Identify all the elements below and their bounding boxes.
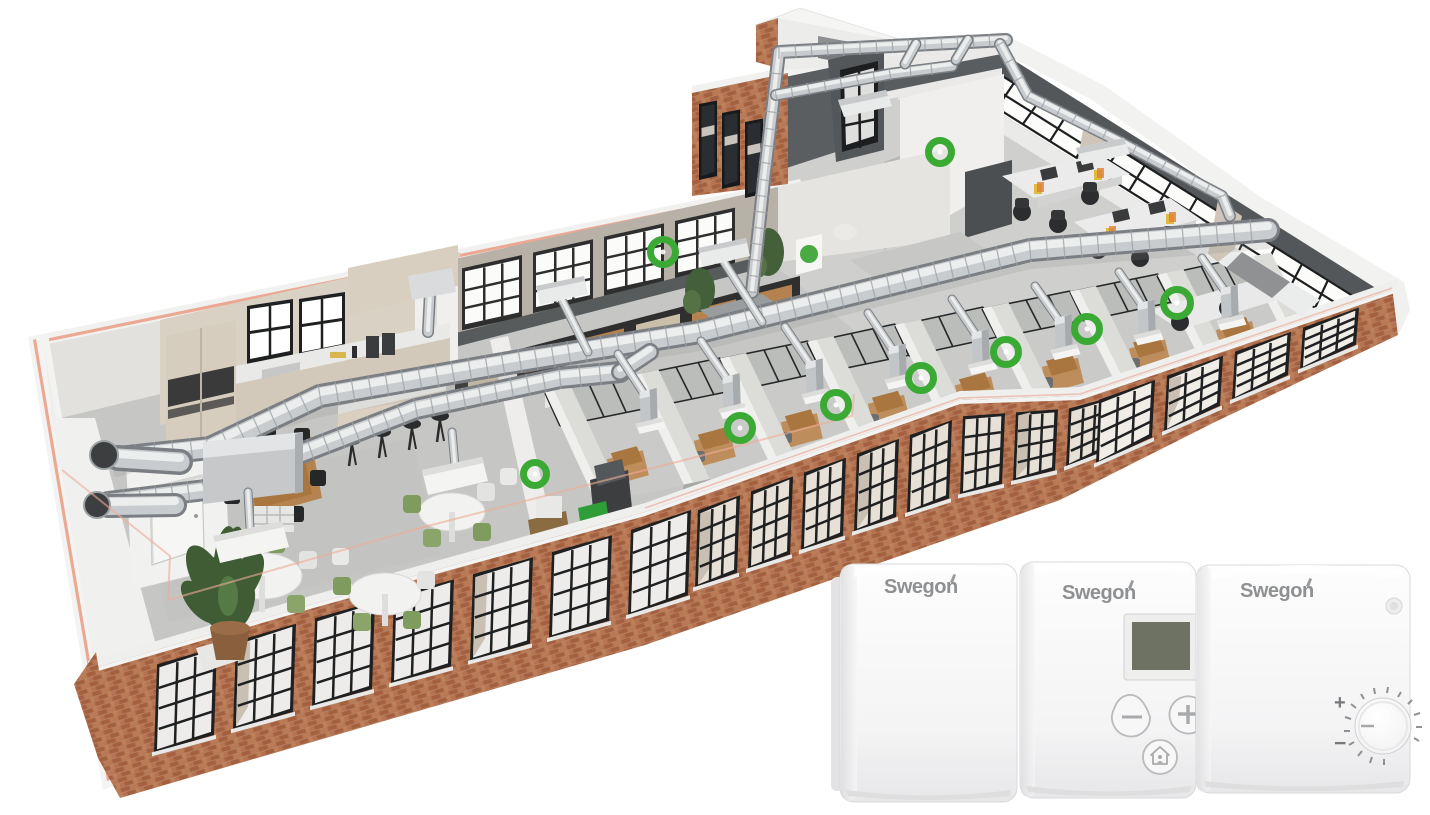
svg-text:Swegon: Swegon bbox=[1062, 582, 1136, 604]
svg-text:+: + bbox=[1334, 692, 1346, 714]
svg-text:−: − bbox=[1334, 732, 1346, 755]
svg-text:Swegon: Swegon bbox=[1240, 580, 1314, 602]
svg-text:Swegon: Swegon bbox=[884, 576, 958, 598]
